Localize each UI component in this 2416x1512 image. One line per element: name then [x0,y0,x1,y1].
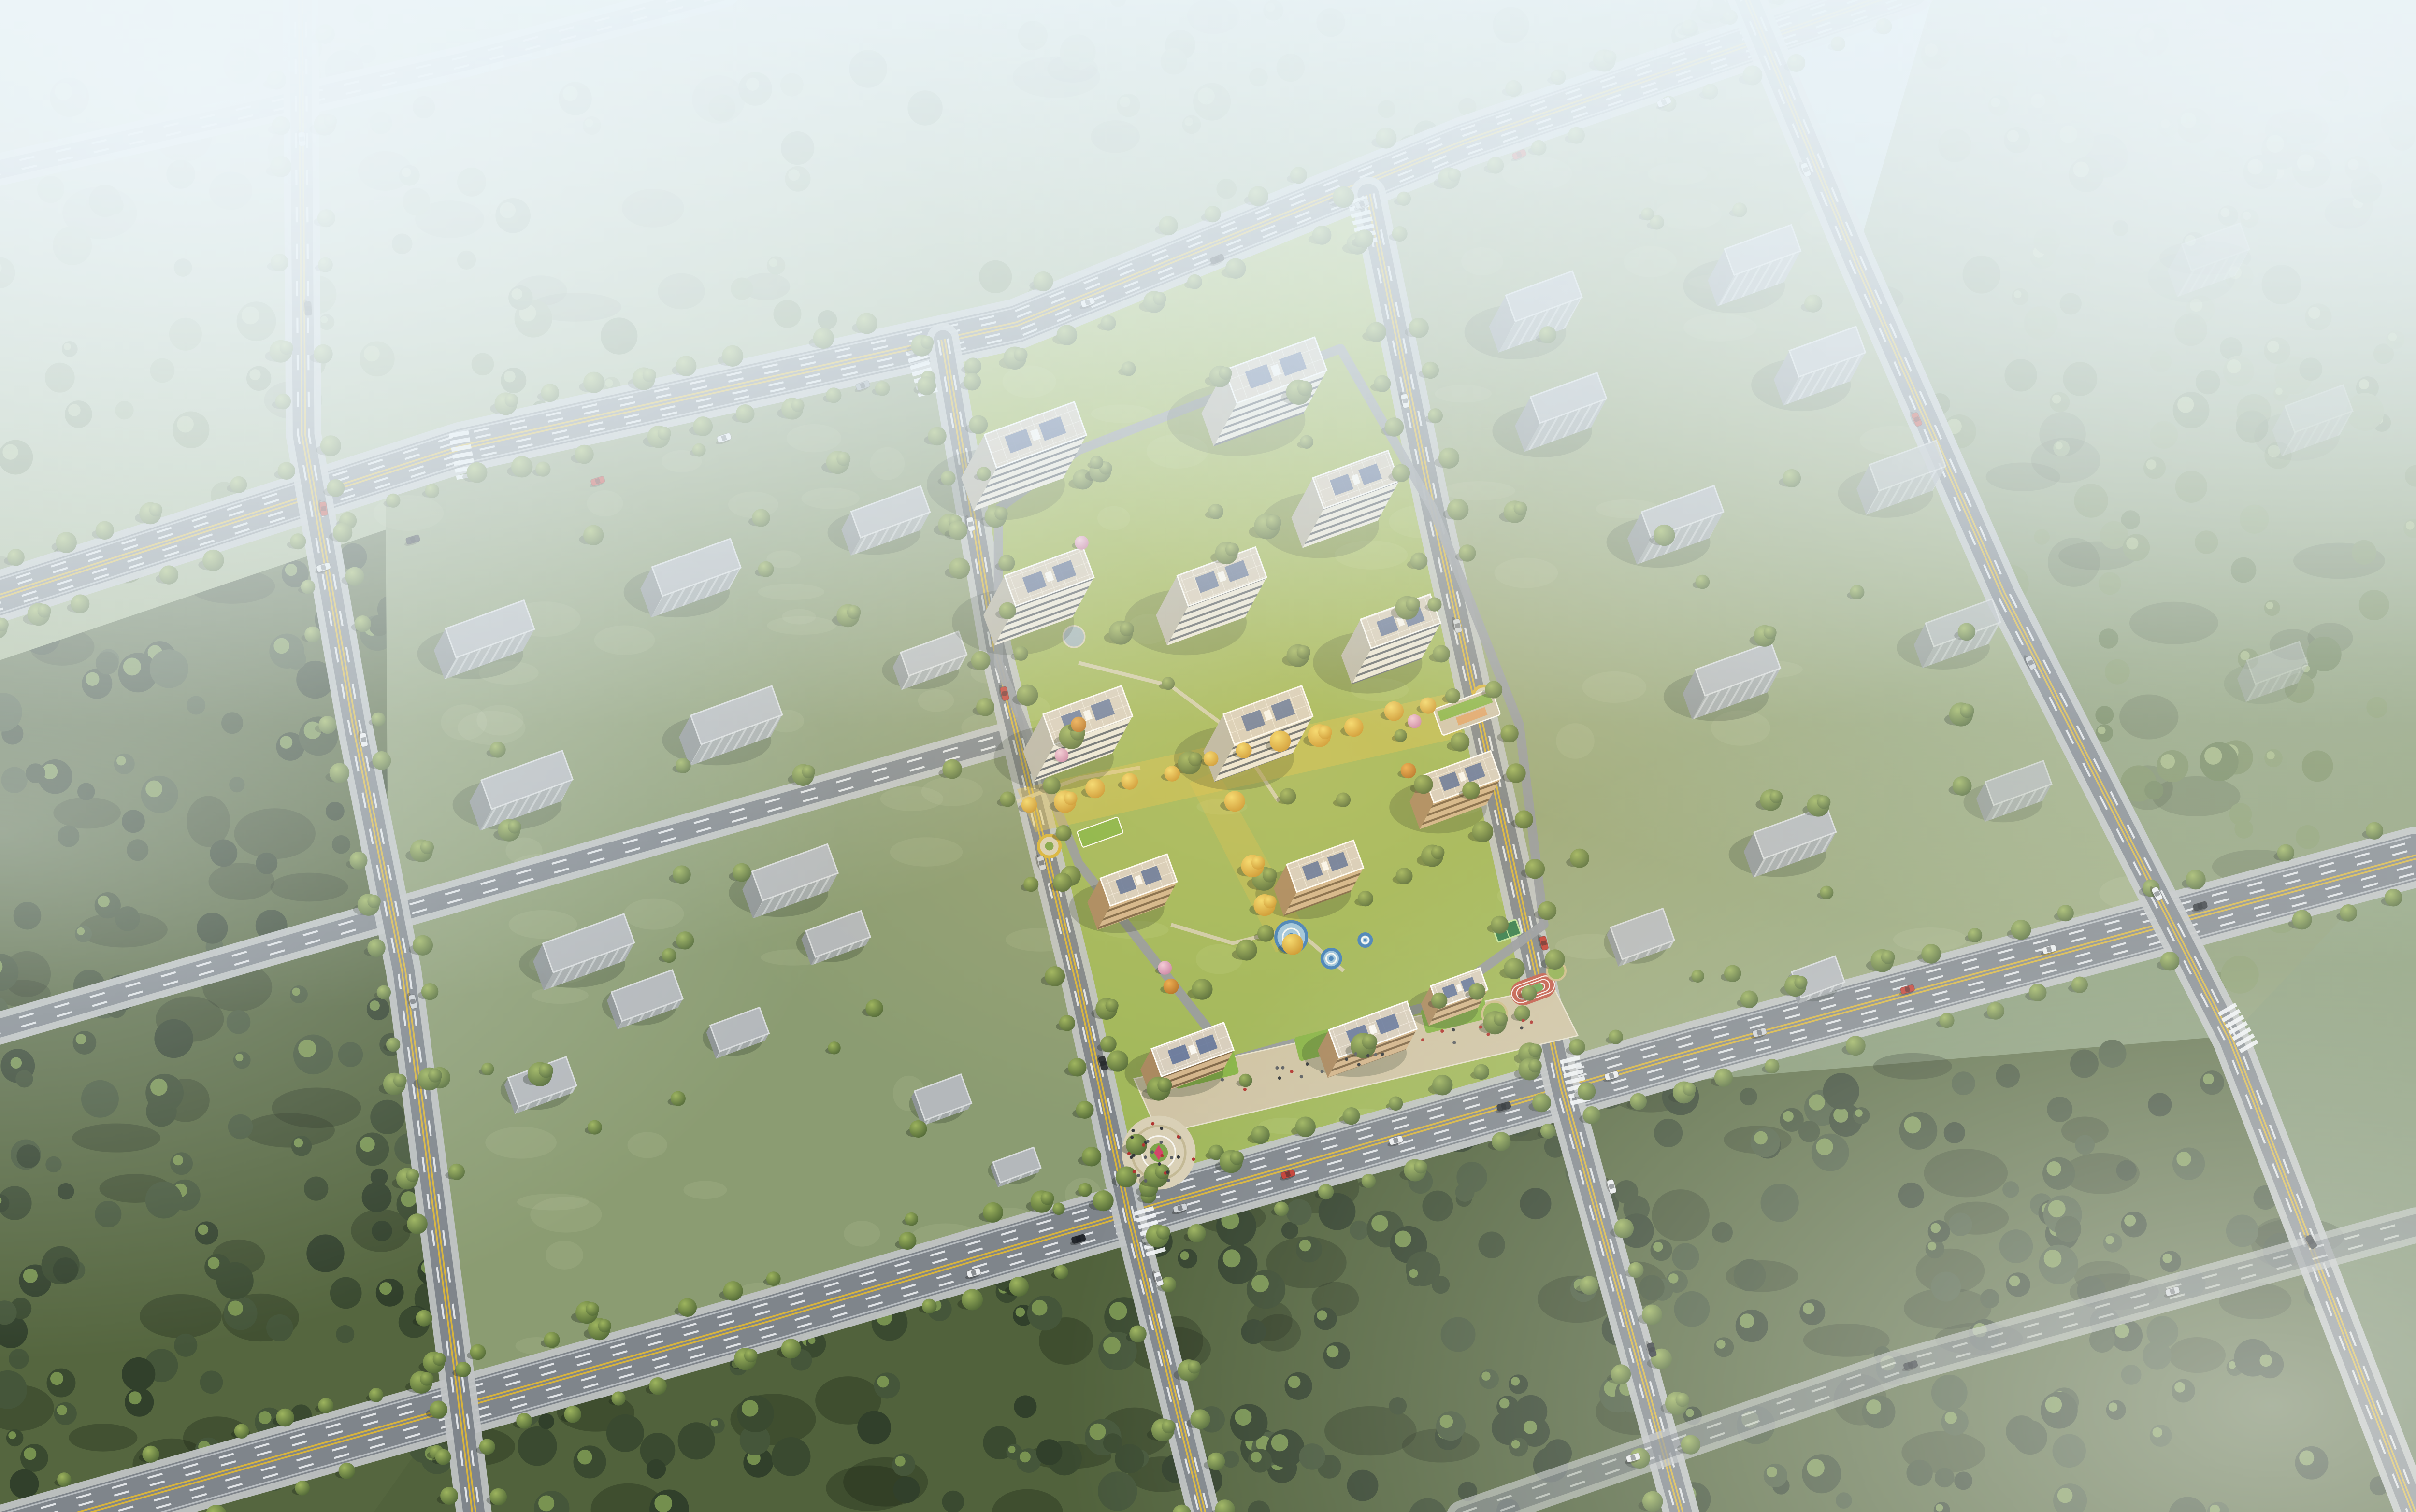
fog-overlay [0,0,2416,1512]
glow-bottom-right [0,0,2416,1512]
aerial-masterplan-rendering [0,0,2416,1512]
render-viewport [0,0,2416,1512]
